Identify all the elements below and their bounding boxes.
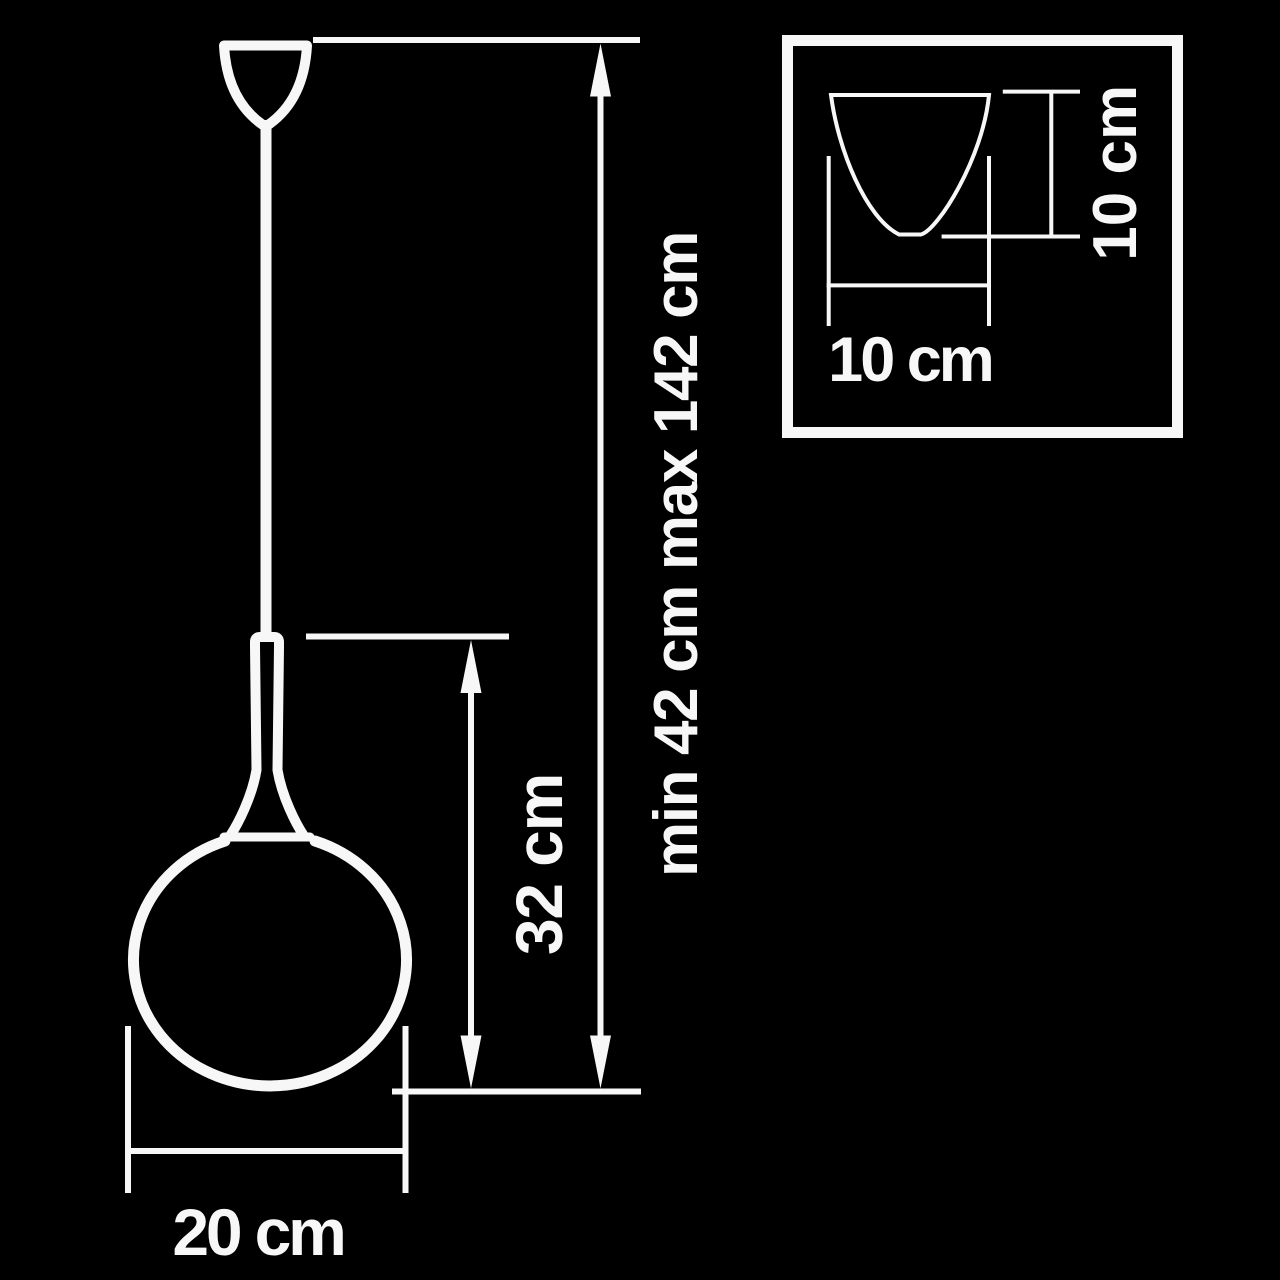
svg-text:32 cm: 32 cm — [502, 774, 576, 955]
svg-text:10 cm: 10 cm — [828, 325, 992, 395]
svg-text:20 cm: 20 cm — [172, 1195, 343, 1269]
svg-text:min 42 cm max 142 cm: min 42 cm max 142 cm — [642, 232, 711, 877]
svg-text:10 cm: 10 cm — [1081, 85, 1150, 261]
